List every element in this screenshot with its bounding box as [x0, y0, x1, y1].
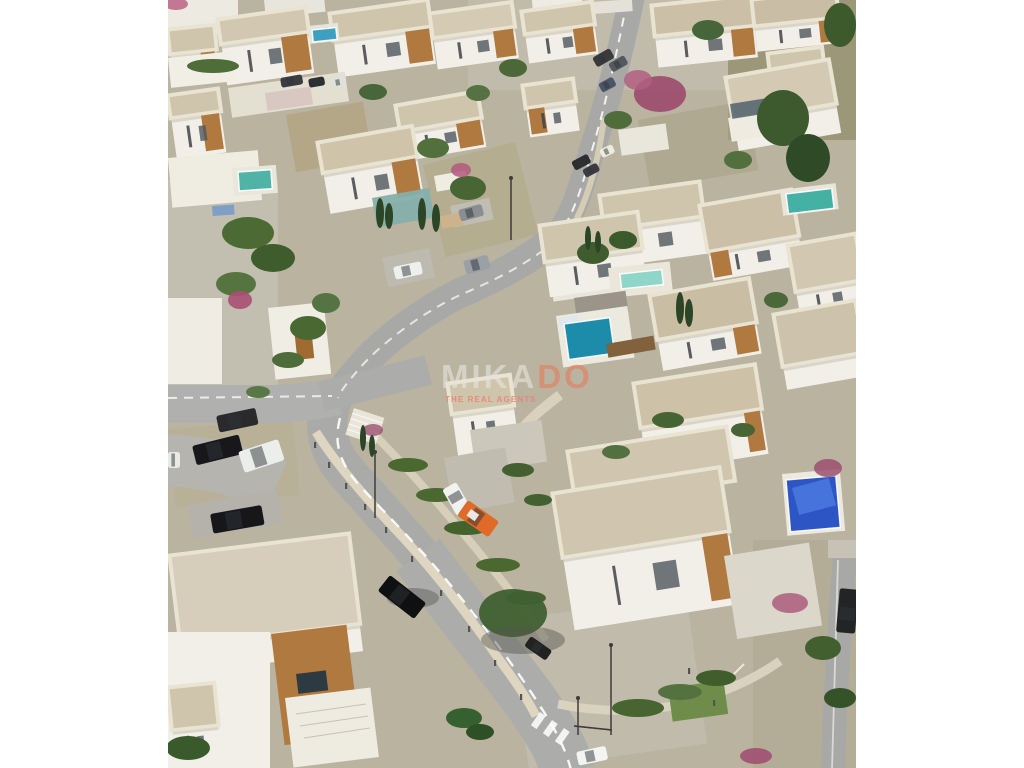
pool: [564, 318, 615, 360]
bollard: [364, 504, 366, 510]
hedge: [524, 494, 552, 506]
bougainvillea: [740, 748, 772, 764]
villa: [327, 0, 438, 78]
windshield: [313, 79, 319, 86]
villa: [168, 86, 229, 160]
wood-facade: [573, 26, 596, 54]
hedge: [187, 59, 239, 73]
window: [799, 28, 812, 38]
left-margin: [0, 0, 168, 768]
bougainvillea: [451, 163, 471, 177]
house: [168, 298, 222, 384]
bougainvillea: [772, 593, 808, 613]
tree: [466, 85, 490, 101]
hedge: [696, 670, 736, 686]
cypress: [676, 292, 684, 324]
hedge: [612, 699, 664, 717]
tree-shadow: [481, 626, 565, 654]
wood-facade: [405, 28, 433, 63]
tree: [764, 292, 788, 308]
wood-facade: [733, 324, 759, 354]
tree: [359, 84, 387, 100]
pool: [238, 170, 272, 191]
window: [757, 250, 772, 263]
tree: [222, 217, 274, 249]
pool: [312, 27, 337, 41]
tree: [724, 151, 752, 169]
bollard: [411, 556, 413, 562]
window: [268, 48, 282, 65]
street-light-head: [576, 696, 580, 700]
window: [296, 670, 328, 694]
cypress: [385, 203, 393, 229]
bollard: [385, 527, 387, 533]
bougainvillea: [363, 424, 383, 436]
wood-facade: [493, 29, 517, 59]
wood-facade: [281, 34, 312, 73]
hedge: [272, 352, 304, 368]
bollard: [440, 590, 442, 596]
pad: [828, 540, 856, 558]
page: MIKADO THE REAL AGENTS: [0, 0, 1024, 768]
tree: [731, 423, 755, 437]
villa: [550, 465, 743, 631]
cypress: [685, 299, 693, 327]
tree: [604, 111, 632, 129]
tree: [290, 316, 326, 340]
tree: [417, 138, 449, 158]
tree: [499, 59, 527, 77]
pergola-terrace: [285, 688, 379, 768]
hedge: [246, 386, 270, 398]
bollard: [520, 694, 522, 700]
villa: [520, 76, 582, 138]
window: [711, 337, 727, 351]
bougainvillea: [624, 70, 652, 90]
windshield: [225, 510, 243, 529]
bollard: [328, 462, 330, 468]
tree: [168, 736, 210, 760]
hedge: [476, 558, 520, 572]
bollard: [713, 700, 715, 706]
cypress: [360, 425, 366, 451]
flat-roof: [170, 27, 215, 52]
courtyard: [724, 543, 822, 639]
bollard: [468, 626, 470, 632]
tree: [450, 176, 486, 200]
window: [832, 291, 843, 302]
aerial-listing-photo: MIKADO THE REAL AGENTS: [168, 0, 856, 768]
cypress: [585, 226, 591, 250]
hedge: [388, 458, 428, 472]
window: [553, 112, 561, 124]
tree: [824, 3, 856, 47]
right-margin: [856, 0, 1024, 768]
wood-facade: [456, 120, 484, 149]
car-white: [168, 452, 180, 468]
tree: [577, 242, 609, 264]
tree: [824, 688, 856, 708]
windshield: [839, 607, 856, 622]
bollard: [314, 442, 316, 448]
house: [168, 298, 222, 384]
sun-loungers: [212, 204, 235, 216]
window: [658, 231, 674, 246]
tree: [652, 412, 684, 428]
pergola-terrace: [285, 688, 379, 768]
window: [652, 560, 680, 591]
pool: [238, 170, 272, 191]
tree: [609, 231, 637, 249]
villa: [427, 0, 521, 70]
tree: [602, 445, 630, 459]
cypress: [376, 198, 384, 228]
bougainvillea: [814, 459, 842, 477]
windshield: [286, 77, 294, 85]
wood-facade: [731, 28, 756, 57]
sun-loungers: [212, 204, 235, 216]
tree: [805, 636, 841, 660]
hedge: [658, 684, 702, 700]
tree: [786, 134, 830, 182]
flat-roof: [170, 685, 217, 728]
cypress: [432, 204, 440, 232]
pool: [564, 318, 615, 360]
villa: [519, 0, 601, 64]
street-light-head: [509, 176, 513, 180]
window: [477, 40, 490, 53]
pool: [312, 27, 337, 41]
villa: [771, 298, 856, 390]
courtyard: [724, 543, 822, 639]
pad: [828, 540, 856, 558]
tree: [692, 20, 724, 40]
street-light-head: [609, 643, 613, 647]
bollard: [494, 660, 496, 666]
hedge: [502, 463, 534, 477]
street-light-head: [373, 450, 377, 454]
window: [444, 131, 457, 143]
bollard: [688, 668, 690, 674]
tree: [251, 244, 295, 272]
window: [296, 670, 328, 694]
window: [386, 42, 401, 57]
scene-canvas: [168, 0, 856, 768]
window: [708, 38, 723, 51]
window: [374, 173, 390, 190]
cypress: [418, 198, 426, 230]
bollard: [345, 483, 347, 489]
bougainvillea: [228, 291, 252, 309]
window: [562, 36, 573, 48]
windshield: [171, 454, 175, 467]
tree: [312, 293, 340, 313]
cypress: [595, 231, 601, 253]
palm-tree: [466, 724, 494, 740]
